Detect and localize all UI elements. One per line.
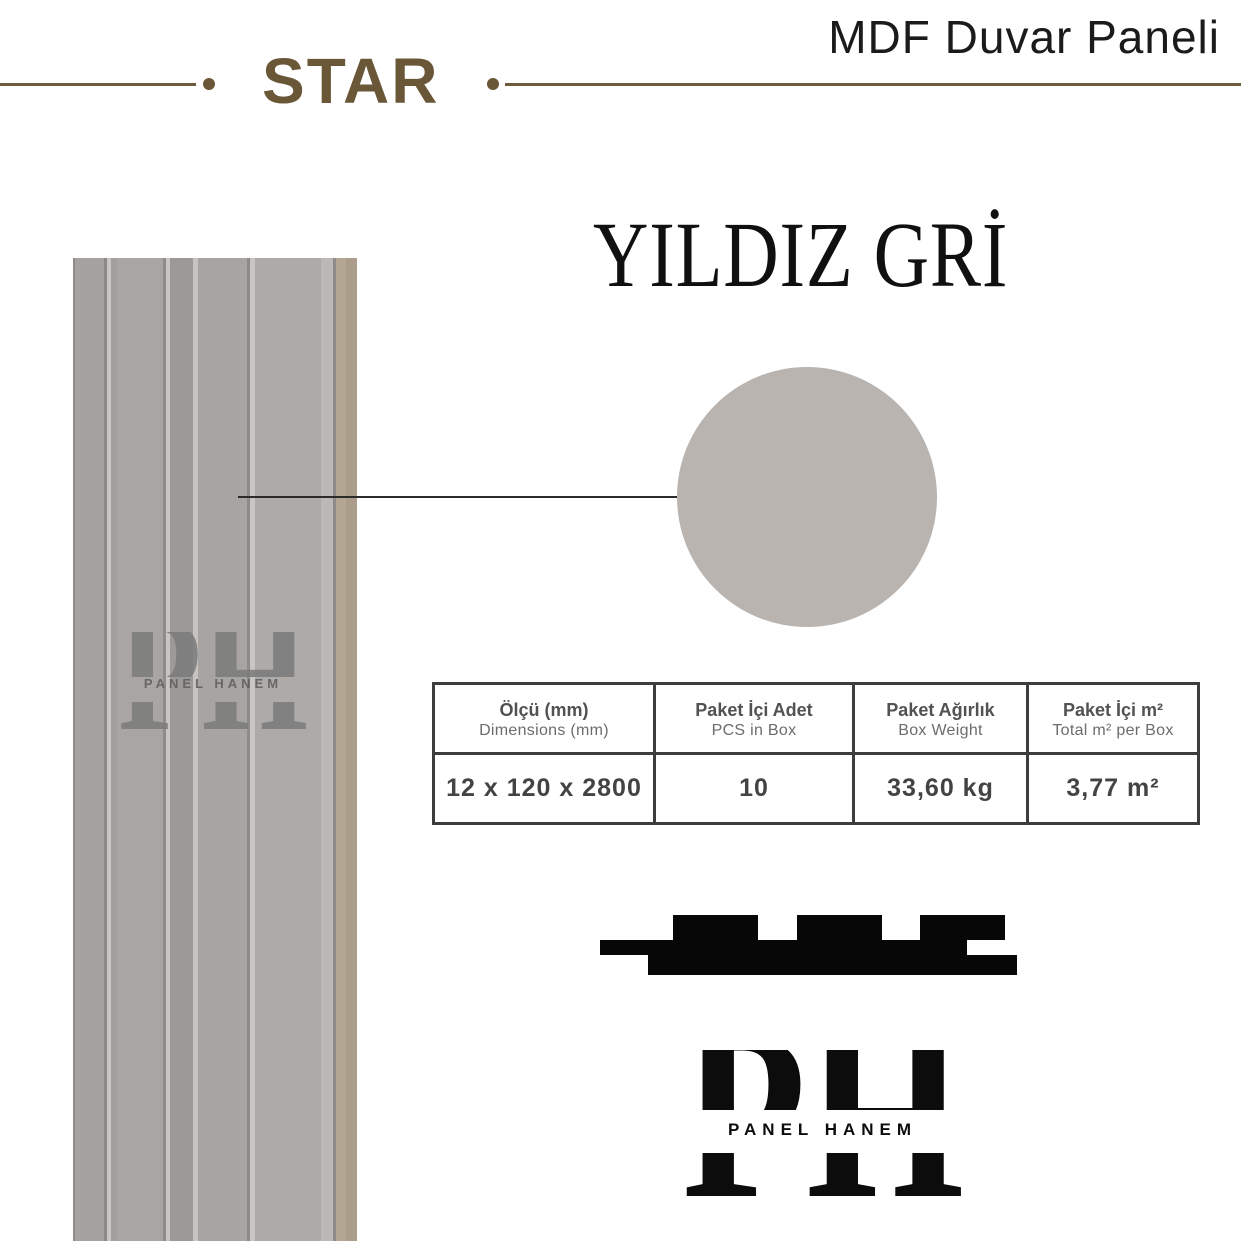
watermark-brand-name: PANEL HANEM xyxy=(118,676,308,691)
header-dot-right xyxy=(487,78,499,90)
color-swatch-circle xyxy=(677,367,937,627)
header-rule-right xyxy=(505,83,1241,86)
col-title-area: Paket İçi m² xyxy=(1029,697,1197,721)
product-flyer: STAR MDF Duvar Paneli PH PANEL HANEM PH … xyxy=(0,0,1241,1241)
col-subtitle-weight: Box Weight xyxy=(855,721,1026,741)
specs-table: Ölçü (mm) Dimensions (mm) Paket İçi Adet… xyxy=(432,682,1200,825)
logo-monogram-bottom: PH xyxy=(682,1153,963,1210)
value-dimensions: 12 x 120 x 2800 xyxy=(434,754,655,824)
watermark-monogram: PH xyxy=(118,702,308,740)
header-dot-left xyxy=(203,78,215,90)
watermark-logo: PH PANEL HANEM PH xyxy=(118,632,308,740)
swatch-pointer-line xyxy=(238,496,677,498)
col-title-pcs: Paket İçi Adet xyxy=(656,697,852,721)
header-cell-weight: Paket Ağırlık Box Weight xyxy=(854,684,1028,754)
logo-monogram: PH xyxy=(682,1153,963,1210)
watermark-monogram: PH xyxy=(118,632,308,677)
brand-logo: PH PANEL HANEM PH xyxy=(682,1050,963,1210)
col-subtitle-dimensions: Dimensions (mm) xyxy=(435,721,653,741)
color-name-title: YILDIZ GRİ xyxy=(593,209,1008,302)
logo-monogram-top: PH xyxy=(682,1050,963,1110)
watermark-monogram-bottom: PH xyxy=(118,702,308,740)
header-cell-area: Paket İçi m² Total m² per Box xyxy=(1028,684,1199,754)
specs-header-row: Ölçü (mm) Dimensions (mm) Paket İçi Adet… xyxy=(434,684,1199,754)
value-pcs: 10 xyxy=(655,754,854,824)
header-rule-left xyxy=(0,83,196,86)
header-cell-pcs: Paket İçi Adet PCS in Box xyxy=(655,684,854,754)
col-title-dimensions: Ölçü (mm) xyxy=(435,697,653,721)
specs-value-row: 12 x 120 x 2800 10 33,60 kg 3,77 m² xyxy=(434,754,1199,824)
panel-photo xyxy=(73,258,357,1241)
col-title-weight: Paket Ağırlık xyxy=(855,697,1026,721)
watermark-monogram-top: PH xyxy=(118,632,308,677)
panel-profile-drawing xyxy=(598,913,1019,975)
header-cell-dimensions: Ölçü (mm) Dimensions (mm) xyxy=(434,684,655,754)
logo-brand-name: PANEL HANEM xyxy=(682,1120,963,1140)
value-area: 3,77 m² xyxy=(1028,754,1199,824)
series-title: STAR xyxy=(262,49,439,113)
value-weight: 33,60 kg xyxy=(854,754,1028,824)
logo-monogram: PH xyxy=(682,1050,963,1110)
col-subtitle-area: Total m² per Box xyxy=(1029,721,1197,741)
product-type-label: MDF Duvar Paneli xyxy=(828,14,1220,60)
col-subtitle-pcs: PCS in Box xyxy=(656,721,852,741)
